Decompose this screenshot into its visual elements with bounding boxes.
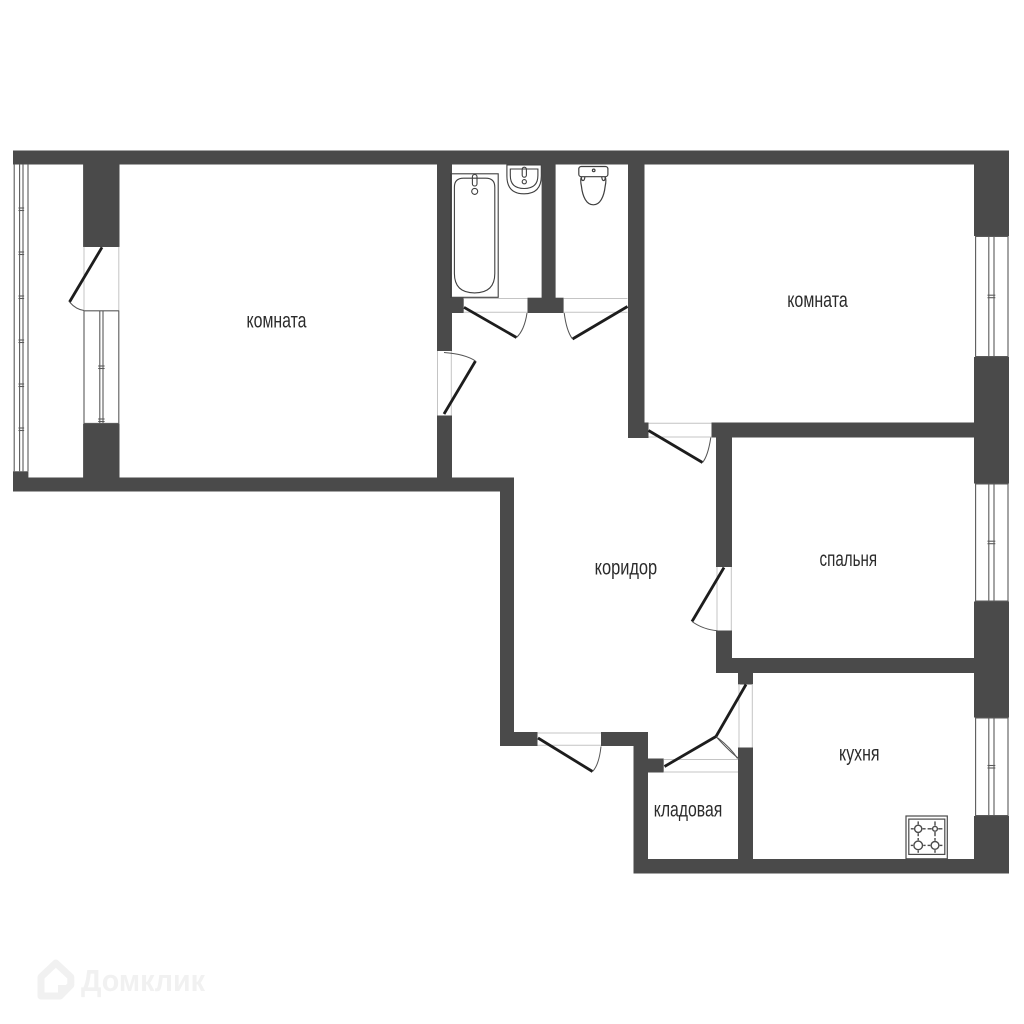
- svg-text:комната: комната: [247, 310, 307, 333]
- svg-text:коридор: коридор: [595, 557, 658, 580]
- svg-text:спальня: спальня: [820, 548, 878, 571]
- svg-text:Домклик: Домклик: [81, 963, 205, 998]
- svg-text:кладовая: кладовая: [654, 799, 723, 822]
- svg-text:комната: комната: [787, 289, 848, 312]
- svg-text:кухня: кухня: [839, 743, 880, 766]
